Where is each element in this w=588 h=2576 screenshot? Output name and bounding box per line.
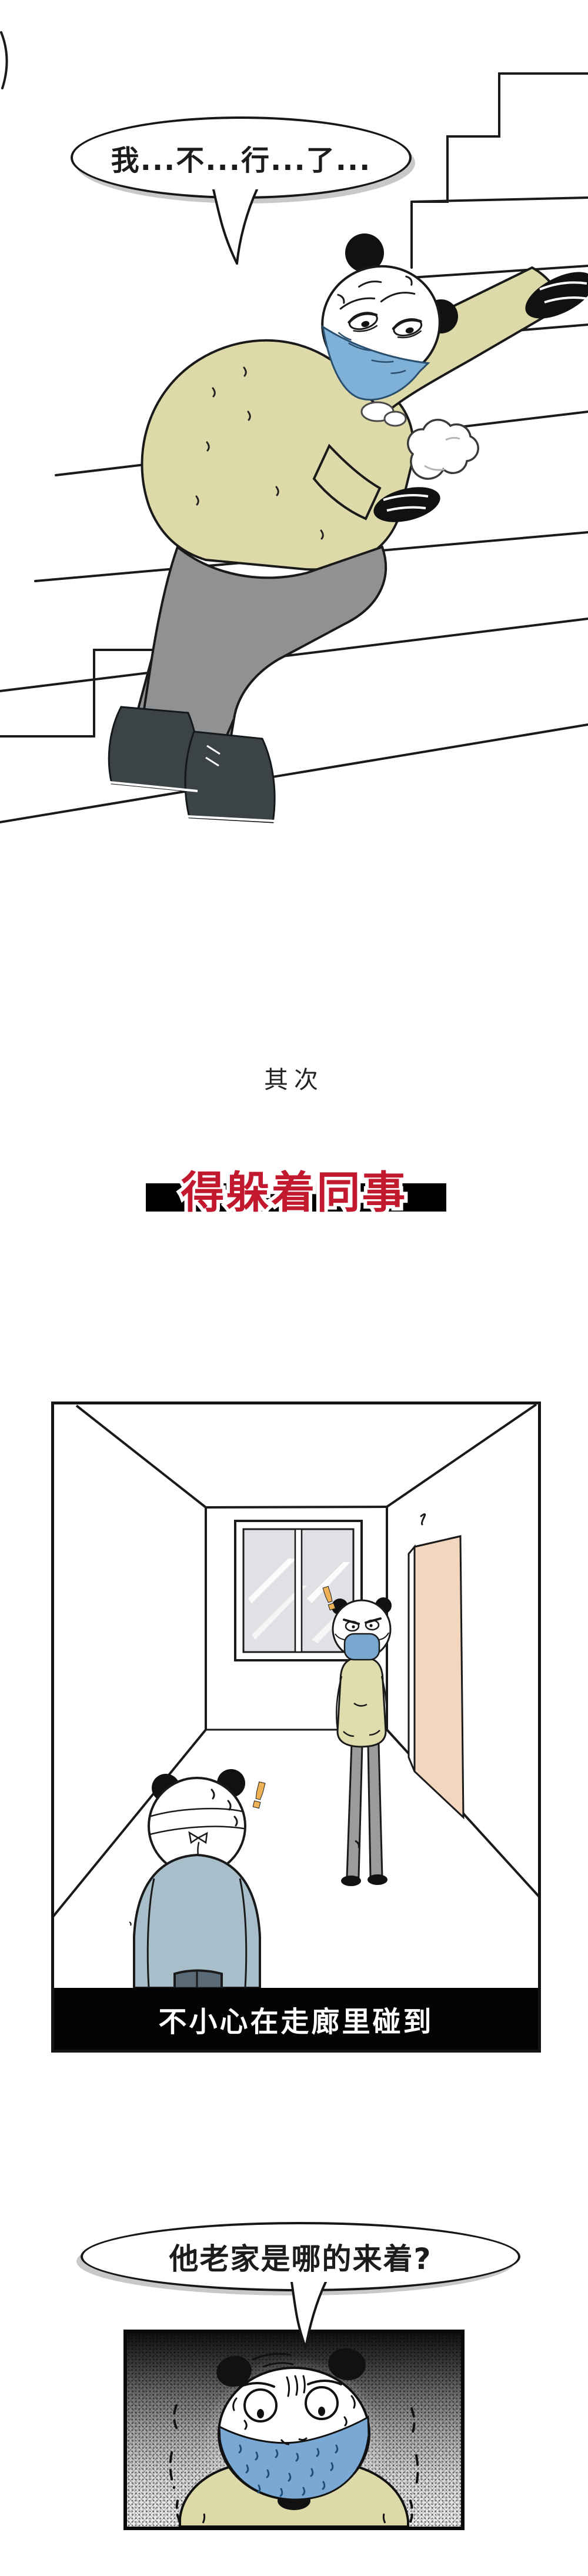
panda-boots	[109, 707, 275, 822]
speech-bubble-text: 他老家是哪的来着?	[169, 2235, 432, 2278]
corridor-lines	[54, 1404, 538, 1920]
comic-strip: 我...不...行...了... 其次 得躲着同事 得躲着同事	[0, 0, 588, 2576]
coworker-shoe	[341, 1876, 361, 1886]
climbing-panda	[109, 233, 588, 822]
hallway-door	[409, 1536, 463, 1817]
headline-text: 得躲着同事	[0, 1157, 588, 1220]
speech-bubble: 我...不...行...了...	[71, 116, 412, 199]
caption-text: 不小心在走廊里碰到	[158, 1998, 433, 2040]
coworker-face-mask	[345, 1634, 379, 1660]
speech-bubble-tail	[275, 2282, 334, 2350]
speech-bubble-text: 我...不...行...了...	[111, 137, 372, 178]
back-panda-sweater	[134, 1855, 260, 1988]
closeup-panel	[123, 2330, 465, 2530]
masked-coworker-panda	[332, 1597, 392, 1886]
hallway-panel: ! !	[51, 1402, 541, 2053]
speech-bubble-tail	[203, 189, 268, 266]
coworker-shoe	[367, 1874, 387, 1885]
headline: 得躲着同事 得躲着同事	[0, 1157, 588, 1222]
section-lead-in-text: 其次	[0, 1060, 588, 1095]
hallway-drawing: ! !	[54, 1404, 538, 1988]
speech-bubble: 他老家是哪的来着?	[81, 2222, 520, 2291]
back-view-panda	[129, 1769, 260, 1988]
coworker-legs	[347, 1743, 382, 1877]
exclamation-mark: !	[246, 1774, 271, 1818]
caption-bar: 不小心在走廊里碰到	[54, 1988, 538, 2050]
closeup-drawing	[127, 2333, 461, 2527]
wall-mark	[421, 1514, 425, 1524]
